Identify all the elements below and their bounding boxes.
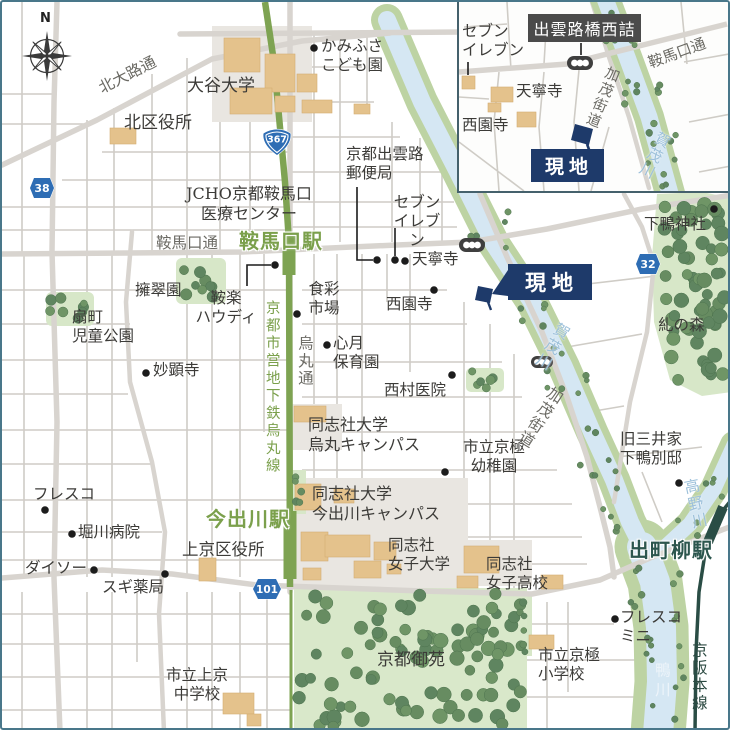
traffic-light-icon [567, 56, 593, 70]
route-shield-367: 367 [263, 130, 290, 156]
kitaoji-road [2, 33, 390, 165]
compass-rose-icon [22, 31, 72, 81]
svg-text:367: 367 [267, 135, 287, 146]
route-shield-101: 101 [253, 579, 281, 599]
kuramaguchi-road [2, 195, 730, 254]
inset-site-box: 現地 [531, 149, 604, 182]
route-shield-38: 38 [30, 178, 54, 198]
inset-buildings [462, 76, 536, 127]
inset-map: セブン イレブン 出雲路橋西詰 天寧寺 西園寺 鞍馬口通 加茂街道 賀茂川 現地 [457, 2, 730, 193]
inset-intersection-box: 出雲路橋西詰 [528, 14, 641, 42]
route-shield-32: 32 [636, 254, 660, 274]
svg-text:32: 32 [640, 258, 655, 271]
svg-text:101: 101 [256, 584, 278, 596]
site-flag-icon [475, 286, 493, 310]
area-map: 367 38 32 101 [0, 0, 730, 730]
kitaoji-road-east [180, 32, 462, 34]
horikawa-road [52, 2, 60, 730]
svg-text:38: 38 [34, 182, 49, 195]
site-callout-main: 現地 [508, 264, 592, 300]
traffic-light-icon [459, 238, 485, 252]
traffic-light-icon [531, 356, 553, 368]
